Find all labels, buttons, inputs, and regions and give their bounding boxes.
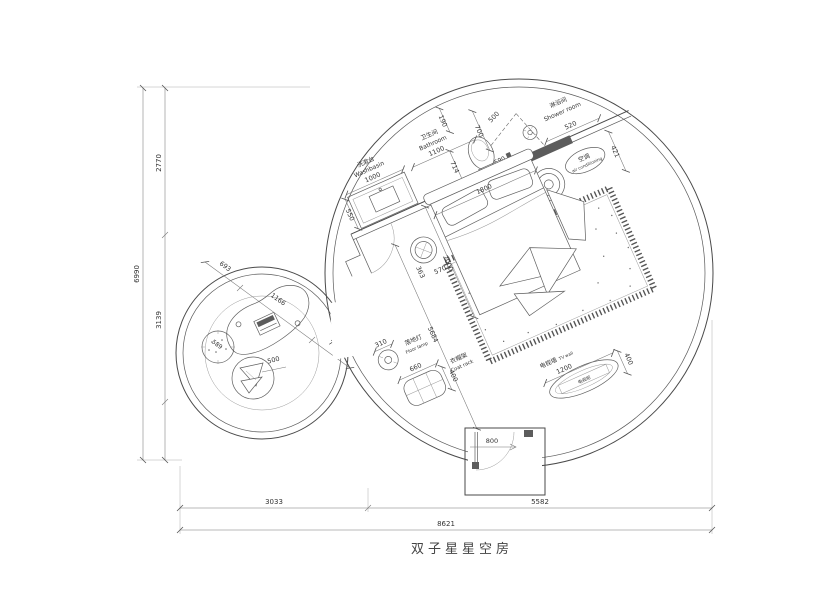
pouf: 589 [201,330,235,364]
dim-basket: 500 [266,355,280,366]
shower-head-icon [521,123,539,141]
passage-opening [330,300,353,360]
dim-shower-w: 520 [563,119,578,131]
bottom-dimension-chain: 3033 5582 8621 [180,320,712,534]
dim-room-diag: 5684 [426,325,440,343]
nightstand: 363 570 [404,233,448,283]
dim-height-total: 6990 [133,265,141,283]
dim-height-top: 2770 [155,154,163,172]
dim-desk-a: 693 [218,259,233,273]
door-post-right [524,430,533,437]
dim-tv-w: 1200 [555,362,573,376]
bedroom-suite: 洗漱台 Washbasin 1000 550 714 590 卫生间 Bathr… [294,38,726,464]
drawing-title: 双子星星空房 [411,541,513,557]
entrance-opening [468,444,542,470]
dim-door-w: 800 [486,437,498,445]
floor-plan-page: 6990 2770 3139 3033 5582 8621 [0,0,837,592]
dim-height-bottom: 3139 [155,311,163,329]
tv-cabinet: 电视柜 电视墙 TV wall 1200 400 [537,327,638,406]
floor-plan-svg: 6990 2770 3139 3033 5582 8621 [0,0,837,592]
towel-basket: 500 [232,355,286,399]
dim-coat-w: 660 [408,361,423,373]
door-post-left [472,462,479,469]
dim-width-left: 3033 [265,498,283,506]
dim-shower-glass: 500 [487,110,501,124]
left-dimension-chain: 6990 2770 3139 [133,87,310,460]
lounge-room: 589 500 693 1166 745 [176,259,350,439]
label-tvwall-en: TV wall [557,350,574,361]
desk [216,278,320,361]
dim-width-total: 8621 [437,520,455,528]
bathroom-label: 卫生间 Bathroom 1100 190 700 [395,96,491,182]
dim-desk-b: 1166 [269,291,287,307]
dim-lamp: 310 [374,337,389,349]
floor-lamp: 310 落地灯 Floor lamp [370,322,432,373]
dim-width-right: 5582 [531,498,549,506]
dim-tv-d: 400 [622,352,634,367]
label-tvcab: 电视柜 [577,374,593,386]
dim-stool-a: 363 [414,265,426,280]
